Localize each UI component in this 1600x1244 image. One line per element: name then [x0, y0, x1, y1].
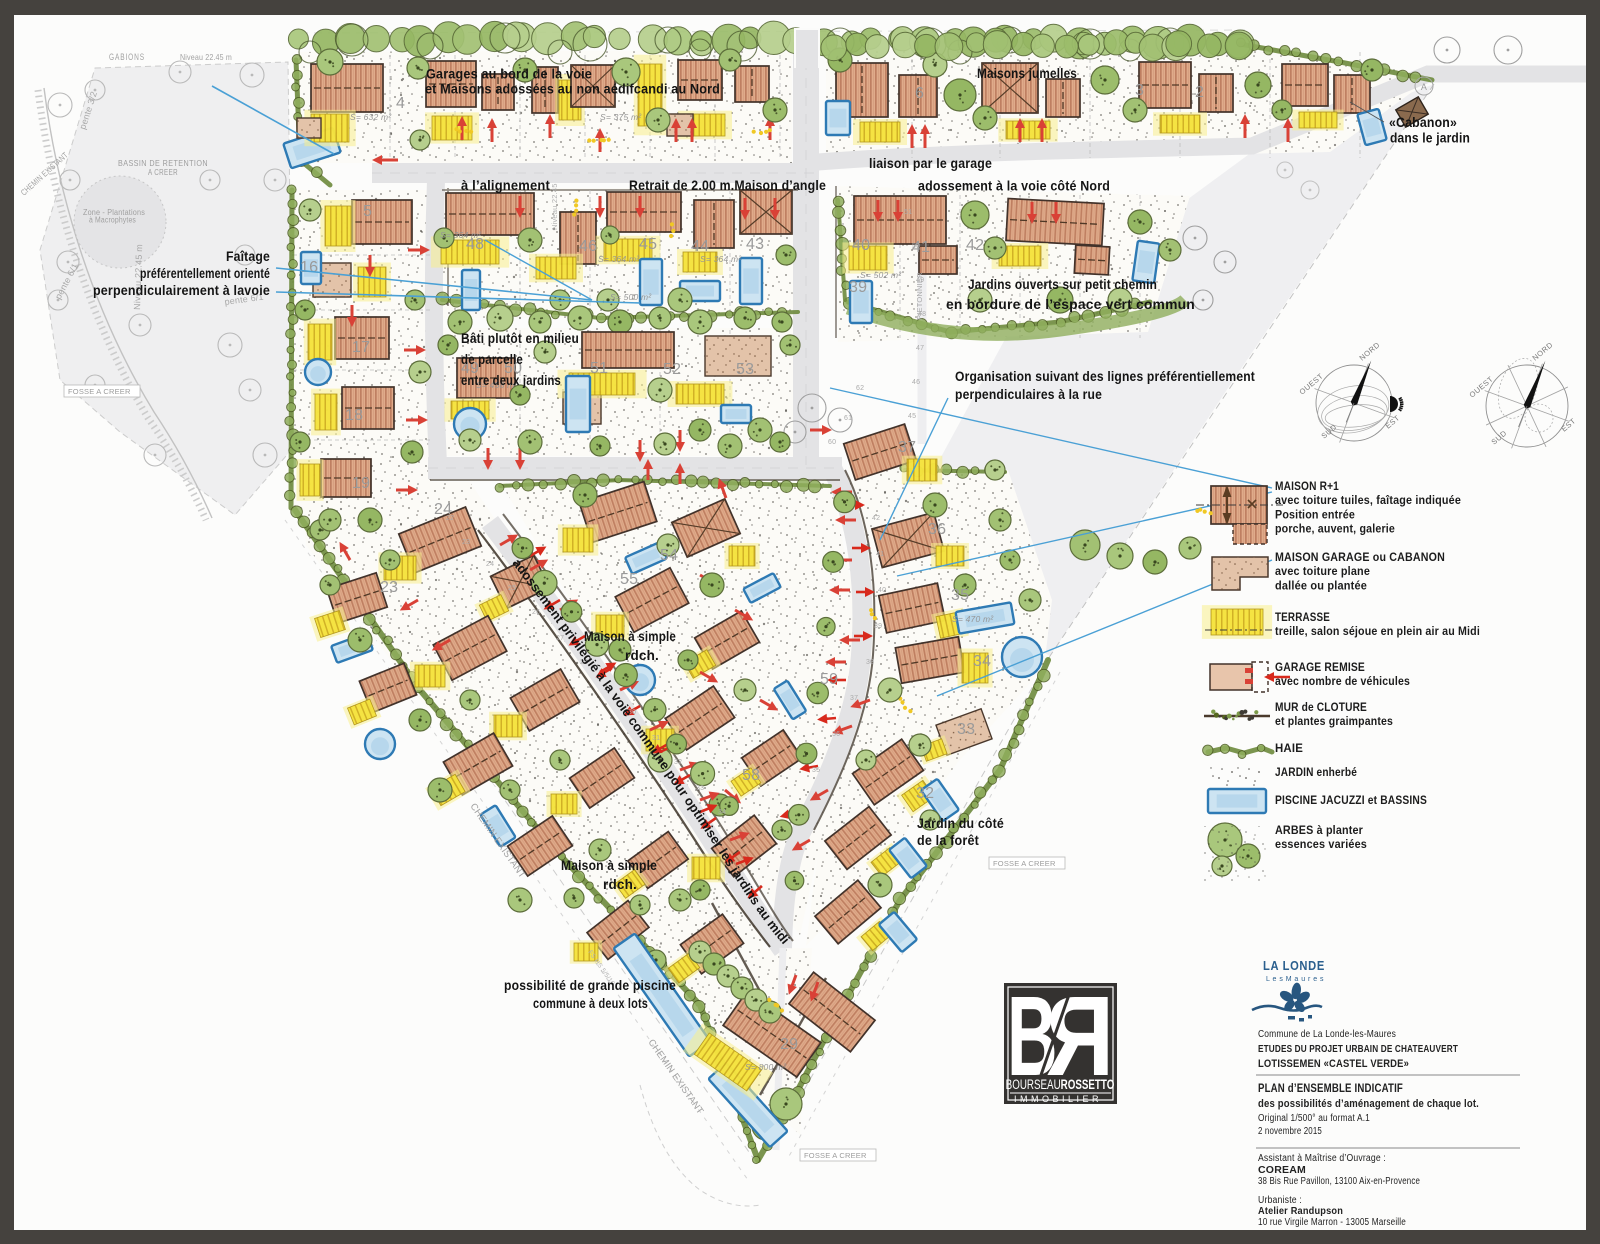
- svg-text:des possibilités d’aménagement: des possibilités d’aménagement de chaque…: [1258, 1098, 1479, 1110]
- svg-text:40: 40: [852, 237, 870, 254]
- svg-text:38: 38: [866, 659, 874, 666]
- svg-text:essences variées: essences variées: [1275, 837, 1367, 851]
- svg-text:Maison à simple: Maison à simple: [561, 858, 657, 873]
- svg-text:42: 42: [966, 237, 984, 254]
- svg-text:Retrait de 2.00 m.Maison d’ang: Retrait de 2.00 m.Maison d’angle: [629, 178, 826, 193]
- svg-text:33: 33: [957, 721, 975, 738]
- svg-text:S= 800 m²: S= 800 m²: [745, 1062, 787, 1072]
- svg-text:de parcelle: de parcelle: [461, 352, 523, 367]
- svg-text:23: 23: [462, 539, 470, 546]
- svg-text:ETUDES DU PROJET URBAIN DE CHA: ETUDES DU PROJET URBAIN DE CHATEAUVERT: [1258, 1043, 1458, 1055]
- svg-text:25: 25: [508, 585, 516, 592]
- svg-text:PLAN d’ENSEMBLE INDICATIF: PLAN d’ENSEMBLE INDICATIF: [1258, 1083, 1403, 1095]
- svg-text:IMMOBILIER: IMMOBILIER: [1014, 1094, 1102, 1104]
- svg-text:37: 37: [850, 695, 858, 702]
- svg-text:S= 502 m²: S= 502 m²: [860, 270, 902, 280]
- svg-text:26: 26: [532, 609, 540, 616]
- svg-text:44: 44: [691, 238, 709, 255]
- svg-text:36: 36: [928, 521, 946, 538]
- svg-text:BOURSEAUROSSETTO: BOURSEAUROSSETTO: [1006, 1076, 1115, 1092]
- svg-text:10 rue Virgile Marron - 13005: 10 rue Virgile Marron - 13005 Marseille: [1258, 1217, 1406, 1228]
- svg-text:53: 53: [736, 361, 754, 378]
- svg-text:38 Bis Rue Pavillon, 13100 Aix: 38 Bis Rue Pavillon, 13100 Aix-en-Proven…: [1258, 1176, 1420, 1187]
- svg-text:commune à deux lots: commune à deux lots: [533, 996, 648, 1011]
- svg-text:TERRASSE: TERRASSE: [1275, 610, 1330, 624]
- svg-text:Bâti plutôt en milieu: Bâti plutôt en milieu: [461, 331, 579, 346]
- svg-text:S= 364 m²: S= 364 m²: [700, 254, 742, 264]
- svg-text:Position entrée: Position entrée: [1275, 507, 1355, 521]
- svg-text:Garages au bord de la voie: Garages au bord de la voie: [426, 67, 592, 82]
- svg-text:51: 51: [904, 209, 912, 216]
- svg-text:perpendiculaires à la rue: perpendiculaires à la rue: [955, 387, 1102, 402]
- svg-text:35: 35: [951, 587, 969, 604]
- svg-text:A: A: [1421, 82, 1427, 92]
- svg-text:37: 37: [898, 439, 916, 456]
- svg-text:S= 375 m²: S= 375 m²: [600, 112, 642, 122]
- svg-text:18: 18: [345, 407, 363, 424]
- svg-text:Organisation suivant des ligne: Organisation suivant des lignes préféren…: [955, 369, 1255, 384]
- svg-text:A CREER: A CREER: [148, 167, 178, 177]
- svg-text:L e s M a u r e s: L e s M a u r e s: [1266, 974, 1324, 983]
- svg-text:Jardins ouverts sur petit chem: Jardins ouverts sur petit chemin: [968, 277, 1157, 292]
- svg-text:Urbaniste :: Urbaniste :: [1258, 1195, 1302, 1206]
- svg-text:GABIONS: GABIONS: [109, 52, 145, 62]
- svg-text:55: 55: [620, 571, 638, 588]
- svg-text:LA LONDE: LA LONDE: [1263, 958, 1325, 973]
- svg-text:préférentellement orienté: préférentellement orienté: [140, 266, 270, 281]
- svg-text:22: 22: [446, 515, 454, 522]
- svg-text:avec toiture tuiles, faîtage i: avec toiture tuiles, faîtage indiquée: [1275, 493, 1461, 507]
- svg-text:porche, auvent, galerie: porche, auvent, galerie: [1275, 522, 1395, 536]
- svg-text:FOSSE A CREER: FOSSE A CREER: [68, 387, 131, 396]
- svg-text:MUR de CLOTURE: MUR de CLOTURE: [1275, 700, 1367, 714]
- svg-text:46: 46: [579, 238, 597, 255]
- svg-text:treille, salon séjoue en plein: treille, salon séjoue en plein air au Mi…: [1275, 624, 1480, 638]
- svg-text:à l’alignement: à l’alignement: [461, 178, 550, 193]
- svg-text:54: 54: [660, 547, 678, 564]
- svg-text:40: 40: [878, 587, 886, 594]
- svg-text:62: 62: [856, 385, 864, 392]
- svg-text:50: 50: [912, 243, 920, 250]
- svg-text:JARDIN enherbé: JARDIN enherbé: [1275, 765, 1357, 779]
- svg-text:MAISON GARAGE ou CABANON: MAISON GARAGE ou CABANON: [1275, 550, 1445, 564]
- svg-text:Maisons jumelles: Maisons jumelles: [977, 66, 1077, 81]
- svg-text:17: 17: [352, 339, 370, 356]
- svg-text:6: 6: [915, 85, 924, 102]
- svg-text:Atelier Randupson: Atelier Randupson: [1258, 1206, 1343, 1217]
- svg-text:S= 364 m²: S= 364 m²: [598, 254, 640, 264]
- svg-text:49: 49: [916, 277, 924, 284]
- svg-text:ARBES à planter: ARBES à planter: [1275, 823, 1363, 837]
- svg-text:36: 36: [832, 731, 840, 738]
- svg-text:33: 33: [696, 785, 704, 792]
- svg-text:4: 4: [396, 95, 405, 112]
- svg-text:GARAGE REMISE: GARAGE REMISE: [1275, 660, 1365, 674]
- svg-text:S= 632 m²: S= 632 m²: [350, 112, 392, 122]
- svg-text:Assistant à Maîtrise d’Ouvrage: Assistant à Maîtrise d’Ouvrage :: [1258, 1153, 1386, 1164]
- svg-text:24: 24: [486, 561, 494, 568]
- svg-text:Niveau 22.45 m: Niveau 22.45 m: [180, 52, 232, 62]
- svg-text:29: 29: [780, 1036, 798, 1053]
- svg-text:Niveau 22.45: Niveau 22.45: [550, 183, 559, 230]
- svg-text:avec nombre de véhicules: avec nombre de véhicules: [1275, 674, 1410, 688]
- svg-text:liaison par le garage: liaison par le garage: [869, 156, 992, 171]
- svg-text:46: 46: [912, 379, 920, 386]
- svg-text:Jardin du côté: Jardin du côté: [917, 816, 1004, 831]
- svg-text:48: 48: [918, 311, 926, 318]
- svg-text:rdch.: rdch.: [603, 877, 637, 892]
- svg-text:2 novembre 2015: 2 novembre 2015: [1258, 1126, 1322, 1137]
- svg-text:58: 58: [742, 767, 760, 784]
- svg-text:23: 23: [380, 579, 398, 596]
- svg-text:S= 364 m²: S= 364 m²: [440, 230, 482, 240]
- svg-text:61: 61: [844, 415, 852, 422]
- svg-text:PISCINE JACUZZI et BASSINS: PISCINE JACUZZI et BASSINS: [1275, 793, 1427, 807]
- svg-text:45: 45: [908, 413, 916, 420]
- svg-text:entre deux jardins: entre deux jardins: [461, 373, 561, 388]
- svg-text:FOSSE A CREER: FOSSE A CREER: [804, 1151, 867, 1160]
- svg-text:rdch.: rdch.: [625, 648, 659, 663]
- svg-text:en bordure de l’espace vert co: en bordure de l’espace vert commun: [946, 297, 1195, 312]
- svg-text:Commune de La Londe-les-Maure: Commune de La Londe-les-Maures: [1258, 1028, 1396, 1040]
- svg-text:Maison à simple: Maison à simple: [584, 629, 676, 644]
- svg-text:45: 45: [639, 236, 657, 253]
- svg-text:de la forêt: de la forêt: [917, 833, 979, 848]
- svg-text:S= 470 m²: S= 470 m²: [952, 614, 994, 624]
- svg-text:et Maisons adossées au non aéd: et Maisons adossées au non aédifcandi au…: [425, 82, 720, 97]
- svg-text:Original 1/500° au format A.1: Original 1/500° au format A.1: [1258, 1113, 1370, 1124]
- svg-text:perpendiculairement à lavoie: perpendiculairement à lavoie: [93, 283, 270, 298]
- svg-text:60: 60: [828, 439, 836, 446]
- svg-text:34: 34: [718, 809, 726, 816]
- svg-text:possibilité de grande piscine: possibilité de grande piscine: [504, 978, 676, 993]
- svg-text:51: 51: [590, 360, 608, 377]
- svg-text:16: 16: [300, 259, 318, 276]
- svg-text:LOTISSEMEN «CASTEL VERDE»: LOTISSEMEN «CASTEL VERDE»: [1258, 1058, 1409, 1070]
- svg-text:41: 41: [876, 551, 884, 558]
- svg-text:35: 35: [812, 767, 820, 774]
- svg-text:59: 59: [820, 671, 838, 688]
- svg-text:32: 32: [916, 785, 934, 802]
- svg-text:et plantes graimpantes: et plantes graimpantes: [1275, 714, 1393, 728]
- svg-text:«Cabanon»: «Cabanon»: [1389, 115, 1457, 130]
- svg-text:HAIE: HAIE: [1275, 741, 1303, 755]
- svg-text:32: 32: [674, 759, 682, 766]
- svg-text:COREAM: COREAM: [1258, 1165, 1306, 1176]
- svg-text:3: 3: [1135, 82, 1144, 99]
- svg-text:S= 500 m²: S= 500 m²: [610, 292, 652, 302]
- svg-text:2: 2: [1195, 84, 1204, 101]
- svg-text:5: 5: [363, 203, 372, 220]
- svg-text:FOSSE A CREER: FOSSE A CREER: [993, 859, 1056, 868]
- svg-text:42: 42: [872, 515, 880, 522]
- svg-text:à Macrophytes: à Macrophytes: [89, 216, 136, 225]
- svg-text:43: 43: [746, 236, 764, 253]
- svg-text:Faîtage: Faîtage: [226, 249, 270, 264]
- svg-text:52: 52: [663, 361, 681, 378]
- svg-text:adossement à la voie côté Nord: adossement à la voie côté Nord: [918, 179, 1110, 194]
- svg-text:dans le jardin: dans le jardin: [1390, 131, 1470, 146]
- svg-text:39: 39: [874, 623, 882, 630]
- svg-text:34: 34: [973, 653, 991, 670]
- svg-text:19: 19: [352, 475, 370, 492]
- svg-text:39: 39: [849, 279, 867, 296]
- svg-text:dallée ou plantée: dallée ou plantée: [1275, 578, 1367, 592]
- svg-text:47: 47: [916, 345, 924, 352]
- svg-text:MAISON R+1: MAISON R+1: [1275, 479, 1339, 493]
- svg-text:avec toiture plane: avec toiture plane: [1275, 564, 1370, 578]
